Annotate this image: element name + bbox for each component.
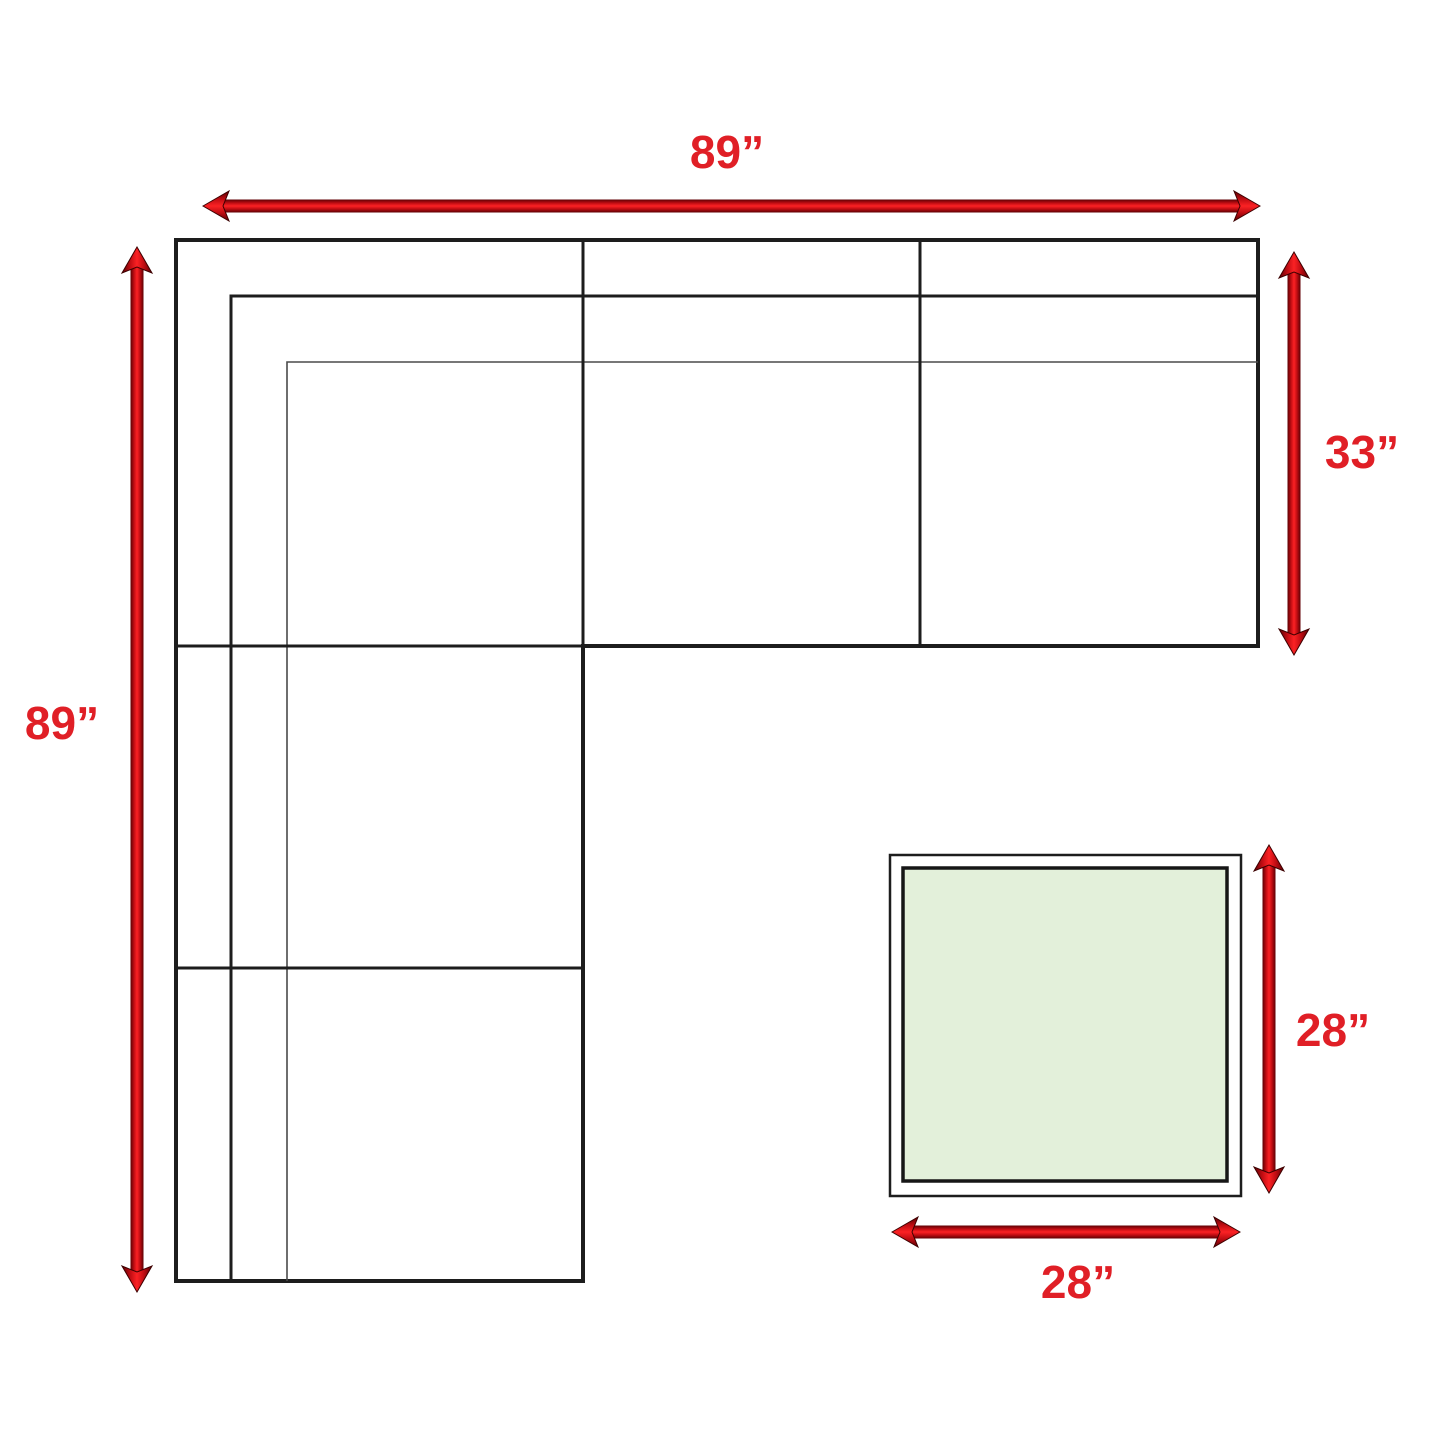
sofa-depth-arrow-icon <box>1279 252 1309 655</box>
ottoman <box>890 855 1241 1196</box>
sofa-width-label: 89” <box>690 129 764 175</box>
ottoman-width-label: 28” <box>1041 1259 1115 1305</box>
sofa-height-arrow-icon <box>122 247 152 1292</box>
ottoman-side-arrow-icon <box>1254 845 1284 1193</box>
ottoman-top-surface <box>903 868 1227 1181</box>
ottoman-side-label: 28” <box>1296 1007 1370 1053</box>
sofa-depth-label: 33” <box>1325 429 1399 475</box>
sofa-height-label: 89” <box>25 700 99 746</box>
ottoman-width-arrow-icon <box>892 1217 1240 1247</box>
dimension-diagram: 89” 89” 33” 28” 28” <box>0 0 1445 1445</box>
sofa-width-arrow-icon <box>203 191 1260 221</box>
diagram-drawing <box>0 0 1445 1445</box>
